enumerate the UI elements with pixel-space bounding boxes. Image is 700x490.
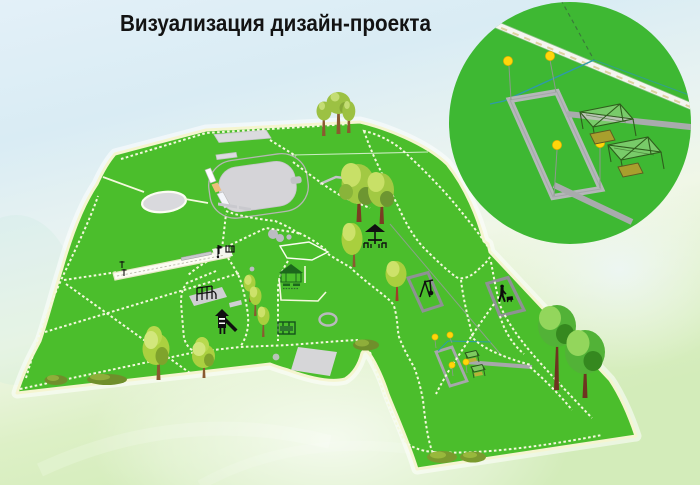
svg-text:Визуализация дизайн-проекта: Визуализация дизайн-проекта (120, 10, 431, 36)
